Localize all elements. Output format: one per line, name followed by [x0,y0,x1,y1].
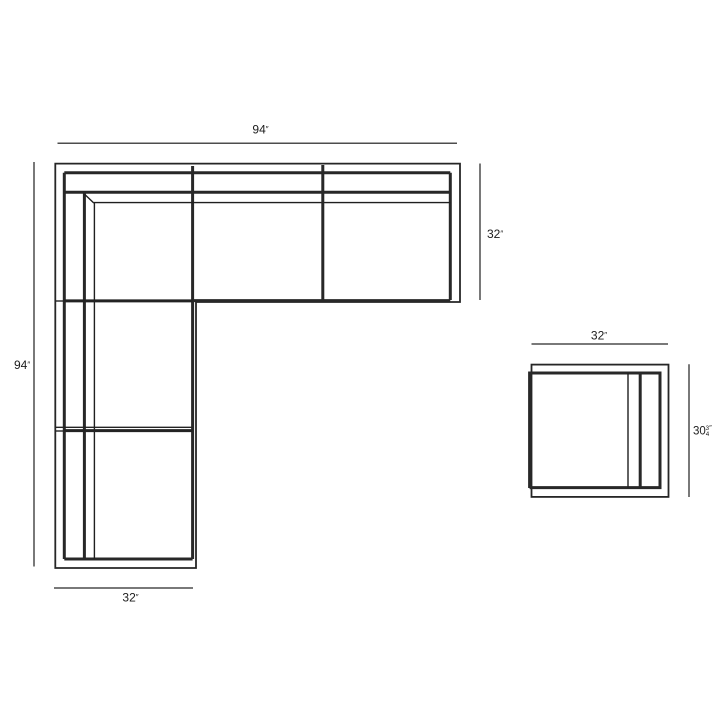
svg-text:4: 4 [706,431,710,438]
svg-text:32″: 32″ [487,227,503,241]
svg-text:32″: 32″ [122,591,138,605]
svg-text:94″: 94″ [14,358,30,372]
svg-text:32″: 32″ [591,329,607,343]
svg-text:30: 30 [693,425,706,437]
svg-text:94″: 94″ [252,123,268,137]
svg-text:″: ″ [709,425,712,432]
